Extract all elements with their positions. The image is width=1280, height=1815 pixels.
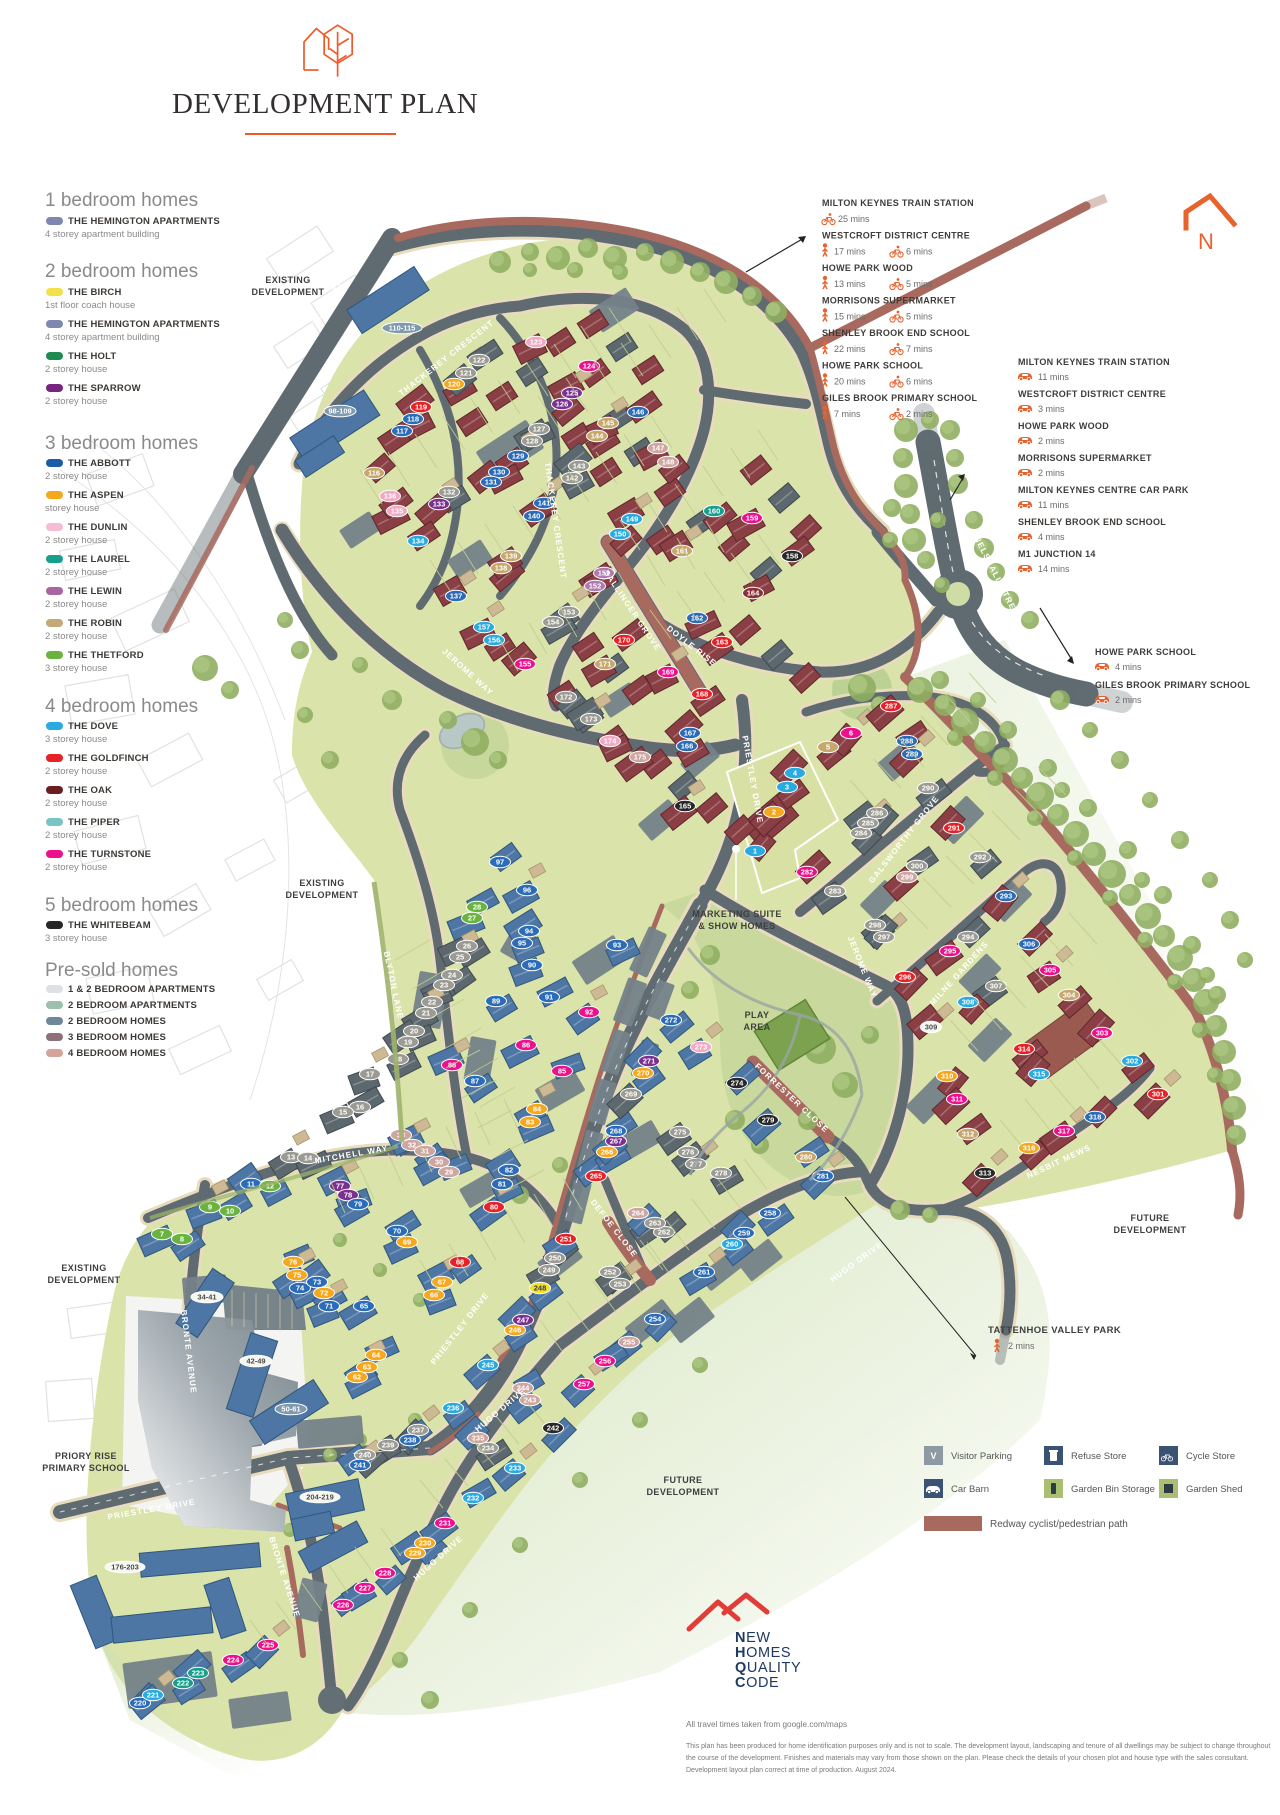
svg-text:76: 76	[289, 1258, 297, 1267]
svg-text:165: 165	[679, 802, 692, 811]
svg-text:133: 133	[433, 500, 446, 509]
svg-text:231: 231	[439, 1519, 452, 1528]
svg-text:2 BEDROOM APARTMENTS: 2 BEDROOM APARTMENTS	[68, 1000, 197, 1011]
svg-text:MILTON KEYNES TRAIN STATION: MILTON KEYNES TRAIN STATION	[822, 198, 974, 208]
svg-text:304: 304	[1063, 991, 1076, 1000]
svg-text:150: 150	[614, 530, 627, 539]
svg-text:175: 175	[634, 753, 647, 762]
svg-text:123: 123	[530, 338, 543, 347]
svg-text:292: 292	[974, 853, 987, 862]
svg-text:242: 242	[547, 1424, 560, 1433]
svg-text:2 mins: 2 mins	[1038, 436, 1065, 446]
svg-text:269: 269	[625, 1090, 638, 1099]
svg-text:136: 136	[384, 492, 397, 501]
svg-text:62: 62	[353, 1373, 361, 1382]
svg-text:143: 143	[573, 462, 586, 471]
svg-text:80: 80	[490, 1203, 498, 1212]
svg-text:313: 313	[979, 1169, 992, 1178]
svg-text:222: 222	[177, 1679, 190, 1688]
svg-text:30: 30	[435, 1158, 443, 1167]
svg-text:157: 157	[478, 623, 491, 632]
svg-text:storey house: storey house	[45, 503, 99, 514]
svg-text:250: 250	[549, 1254, 562, 1263]
svg-text:65: 65	[360, 1302, 368, 1311]
svg-text:176-203: 176-203	[111, 1563, 139, 1572]
svg-text:85: 85	[558, 1067, 566, 1076]
svg-text:2 bedroom homes: 2 bedroom homes	[45, 261, 198, 282]
svg-text:87: 87	[471, 1077, 479, 1086]
svg-text:M1 JUNCTION 14: M1 JUNCTION 14	[1018, 549, 1096, 559]
svg-text:2 BEDROOM HOMES: 2 BEDROOM HOMES	[68, 1016, 166, 1027]
svg-text:289: 289	[906, 750, 919, 759]
svg-text:220: 220	[134, 1699, 147, 1708]
svg-text:16: 16	[356, 1103, 364, 1112]
svg-text:226: 226	[337, 1601, 350, 1610]
svg-text:167: 167	[684, 729, 697, 738]
svg-text:297: 297	[878, 933, 891, 942]
svg-text:EXISTING: EXISTING	[265, 275, 310, 285]
svg-text:DEVELOPMENT PLAN: DEVELOPMENT PLAN	[172, 88, 478, 120]
svg-text:159: 159	[746, 514, 759, 523]
svg-text:3 BEDROOM HOMES: 3 BEDROOM HOMES	[68, 1032, 166, 1043]
svg-text:255: 255	[623, 1338, 636, 1347]
svg-text:120: 120	[448, 380, 461, 389]
svg-text:PLAY: PLAY	[745, 1010, 770, 1020]
svg-text:149: 149	[626, 515, 639, 524]
svg-text:256: 256	[599, 1357, 612, 1366]
svg-text:42-49: 42-49	[246, 1357, 265, 1366]
svg-text:279: 279	[762, 1116, 775, 1125]
svg-text:300: 300	[911, 862, 924, 871]
svg-text:DEVELOPMENT: DEVELOPMENT	[647, 1487, 720, 1497]
svg-text:THE LEWIN: THE LEWIN	[68, 586, 122, 597]
svg-text:168: 168	[696, 690, 709, 699]
svg-text:THE TURNSTONE: THE TURNSTONE	[68, 849, 151, 860]
svg-text:131: 131	[485, 478, 498, 487]
svg-text:147: 147	[652, 444, 665, 453]
svg-text:266: 266	[601, 1148, 614, 1157]
svg-text:263: 263	[649, 1219, 662, 1228]
svg-text:298: 298	[869, 921, 882, 930]
svg-text:8: 8	[180, 1235, 184, 1244]
svg-text:THE WHITEBEAM: THE WHITEBEAM	[68, 920, 151, 931]
svg-text:248: 248	[534, 1284, 547, 1293]
svg-text:172: 172	[560, 693, 573, 702]
svg-text:72: 72	[320, 1289, 328, 1298]
svg-text:92: 92	[585, 1008, 593, 1017]
svg-text:308: 308	[962, 998, 975, 1007]
svg-text:1st floor coach house: 1st floor coach house	[45, 300, 135, 311]
svg-text:3 storey house: 3 storey house	[45, 734, 107, 745]
svg-text:259: 259	[738, 1229, 751, 1238]
svg-text:154: 154	[547, 618, 560, 627]
svg-text:14 mins: 14 mins	[1038, 564, 1070, 574]
svg-text:169: 169	[662, 668, 675, 677]
svg-text:121: 121	[460, 369, 473, 378]
svg-text:318: 318	[1089, 1113, 1102, 1122]
svg-text:284: 284	[855, 829, 868, 838]
svg-text:MORRISONS SUPERMARKET: MORRISONS SUPERMARKET	[1018, 453, 1152, 463]
svg-text:5 mins: 5 mins	[906, 312, 933, 322]
svg-text:299: 299	[901, 873, 914, 882]
svg-text:3 mins: 3 mins	[1038, 404, 1065, 414]
svg-text:83: 83	[526, 1118, 534, 1127]
svg-text:160: 160	[708, 507, 721, 516]
svg-text:EXISTING: EXISTING	[61, 1263, 106, 1273]
svg-text:4 mins: 4 mins	[1115, 662, 1142, 672]
svg-text:25: 25	[456, 953, 464, 962]
svg-text:130: 130	[493, 468, 506, 477]
svg-text:262: 262	[658, 1228, 671, 1237]
svg-text:275: 275	[674, 1128, 687, 1137]
svg-text:128: 128	[526, 437, 539, 446]
svg-text:64: 64	[372, 1351, 381, 1360]
svg-text:317: 317	[1058, 1127, 1071, 1136]
svg-text:2 storey house: 2 storey house	[45, 862, 107, 873]
svg-text:96: 96	[523, 886, 531, 895]
svg-text:241: 241	[354, 1461, 367, 1470]
svg-text:32: 32	[408, 1141, 416, 1150]
svg-text:2 storey house: 2 storey house	[45, 567, 107, 578]
svg-text:This plan has been produced fo: This plan has been produced for home ide…	[686, 1743, 1270, 1750]
svg-text:270: 270	[637, 1069, 650, 1078]
svg-text:272: 272	[665, 1016, 678, 1025]
svg-text:228: 228	[379, 1569, 392, 1578]
svg-text:273: 273	[695, 1043, 708, 1052]
svg-text:67: 67	[438, 1278, 446, 1287]
svg-text:15 mins: 15 mins	[834, 312, 866, 322]
svg-text:Visitor Parking: Visitor Parking	[951, 1451, 1012, 1462]
svg-text:249: 249	[543, 1266, 556, 1275]
svg-text:QUALITY: QUALITY	[735, 1660, 801, 1676]
svg-text:294: 294	[962, 933, 975, 942]
svg-text:29: 29	[445, 1168, 453, 1177]
svg-text:TATTENHOE VALLEY PARK: TATTENHOE VALLEY PARK	[988, 1325, 1121, 1336]
svg-text:2 mins: 2 mins	[1038, 468, 1065, 478]
svg-text:22 mins: 22 mins	[834, 344, 866, 354]
svg-text:Development layout plan correc: Development layout plan correct at time …	[686, 1767, 897, 1774]
svg-text:260: 260	[726, 1240, 739, 1249]
svg-text:N: N	[1198, 229, 1214, 254]
svg-text:316: 316	[1023, 1144, 1036, 1153]
svg-text:98-109: 98-109	[328, 407, 351, 416]
svg-text:Redway cyclist/pedestrian path: Redway cyclist/pedestrian path	[990, 1519, 1128, 1530]
svg-text:7 mins: 7 mins	[834, 409, 861, 419]
svg-text:All travel times taken from go: All travel times taken from google.com/m…	[686, 1720, 847, 1729]
svg-text:110-115: 110-115	[389, 324, 416, 333]
svg-text:81: 81	[498, 1180, 506, 1189]
svg-text:THE ROBIN: THE ROBIN	[68, 618, 122, 629]
svg-text:THE SPARROW: THE SPARROW	[68, 383, 141, 394]
svg-text:276: 276	[682, 1148, 695, 1157]
svg-text:V: V	[930, 1451, 936, 1461]
svg-text:26: 26	[463, 942, 471, 951]
svg-text:227: 227	[359, 1584, 372, 1593]
svg-text:253: 253	[614, 1280, 627, 1289]
svg-text:290: 290	[922, 784, 935, 793]
svg-text:7: 7	[160, 1230, 164, 1239]
svg-text:NEW: NEW	[735, 1630, 771, 1646]
svg-text:63: 63	[363, 1363, 371, 1372]
svg-text:134: 134	[412, 537, 425, 546]
svg-text:166: 166	[681, 742, 694, 751]
svg-text:MILTON KEYNES CENTRE CAR PARK: MILTON KEYNES CENTRE CAR PARK	[1018, 485, 1189, 495]
svg-text:Pre-sold homes: Pre-sold homes	[45, 960, 178, 981]
svg-text:204-219: 204-219	[306, 1493, 334, 1502]
svg-text:309: 309	[925, 1023, 938, 1032]
svg-text:DEVELOPMENT: DEVELOPMENT	[48, 1275, 121, 1285]
svg-text:118: 118	[407, 415, 419, 424]
svg-text:FUTURE: FUTURE	[664, 1475, 703, 1485]
svg-text:251: 251	[560, 1235, 573, 1244]
svg-text:310: 310	[941, 1072, 954, 1081]
svg-text:94: 94	[525, 927, 534, 936]
svg-text:95: 95	[518, 939, 526, 948]
svg-text:138: 138	[495, 564, 508, 573]
svg-text:24: 24	[448, 971, 457, 980]
svg-text:MILTON KEYNES TRAIN STATION: MILTON KEYNES TRAIN STATION	[1018, 357, 1170, 367]
svg-text:278: 278	[715, 1169, 728, 1178]
svg-text:MORRISONS SUPERMARKET: MORRISONS SUPERMARKET	[822, 296, 956, 306]
svg-text:162: 162	[691, 614, 704, 623]
svg-text:17 mins: 17 mins	[834, 247, 866, 257]
svg-text:132: 132	[443, 488, 456, 497]
svg-text:140: 140	[528, 512, 541, 521]
svg-text:11 mins: 11 mins	[1038, 372, 1069, 382]
svg-text:22: 22	[428, 998, 436, 1007]
svg-text:HOWE PARK WOOD: HOWE PARK WOOD	[1018, 421, 1109, 431]
svg-text:5 bedroom homes: 5 bedroom homes	[45, 895, 198, 916]
svg-text:280: 280	[800, 1153, 813, 1162]
svg-text:50-61: 50-61	[281, 1405, 300, 1414]
svg-text:238: 238	[404, 1436, 417, 1445]
svg-text:236: 236	[447, 1404, 460, 1413]
svg-text:28: 28	[473, 903, 481, 912]
svg-text:34-41: 34-41	[197, 1293, 216, 1302]
svg-text:174: 174	[604, 737, 617, 746]
svg-text:152: 152	[589, 582, 602, 591]
svg-text:2 mins: 2 mins	[1008, 1341, 1035, 1351]
svg-text:2 storey house: 2 storey house	[45, 535, 107, 546]
svg-text:2 storey house: 2 storey house	[45, 599, 107, 610]
svg-text:314: 314	[1018, 1045, 1031, 1054]
svg-text:20: 20	[410, 1027, 418, 1036]
svg-text:135: 135	[391, 507, 404, 516]
svg-text:HOMES: HOMES	[735, 1645, 791, 1661]
svg-text:77: 77	[336, 1182, 344, 1191]
svg-text:FUTURE: FUTURE	[1131, 1213, 1170, 1223]
svg-text:5 mins: 5 mins	[906, 279, 933, 289]
svg-text:66: 66	[430, 1291, 438, 1300]
svg-text:90: 90	[528, 961, 536, 970]
svg-text:19: 19	[404, 1038, 412, 1047]
svg-text:312: 312	[962, 1130, 975, 1139]
svg-text:283: 283	[829, 887, 842, 896]
svg-text:142: 142	[566, 474, 579, 483]
svg-text:1 & 2 BEDROOM APARTMENTS: 1 & 2 BEDROOM APARTMENTS	[68, 984, 215, 995]
svg-text:17: 17	[366, 1070, 374, 1079]
svg-text:285: 285	[862, 819, 875, 828]
svg-text:230: 230	[419, 1539, 432, 1548]
svg-text:71: 71	[325, 1302, 333, 1311]
svg-text:1: 1	[753, 847, 757, 856]
svg-text:170: 170	[618, 636, 631, 645]
svg-text:5: 5	[826, 743, 830, 752]
svg-text:146: 146	[632, 408, 645, 417]
svg-text:Car Barn: Car Barn	[951, 1484, 989, 1495]
svg-text:295: 295	[944, 947, 957, 956]
svg-text:126: 126	[556, 400, 569, 409]
svg-text:4 bedroom homes: 4 bedroom homes	[45, 696, 198, 717]
svg-text:20 mins: 20 mins	[834, 377, 866, 387]
svg-text:261: 261	[698, 1268, 711, 1277]
svg-text:6 mins: 6 mins	[906, 247, 933, 257]
svg-text:234: 234	[482, 1444, 495, 1453]
svg-text:MARKETING SUITE: MARKETING SUITE	[692, 909, 782, 919]
svg-text:267: 267	[610, 1137, 623, 1146]
svg-text:84: 84	[533, 1105, 542, 1114]
svg-text:287: 287	[885, 702, 898, 711]
svg-text:Refuse Store: Refuse Store	[1071, 1451, 1126, 1462]
svg-text:6 mins: 6 mins	[906, 377, 933, 387]
svg-text:3 bedroom homes: 3 bedroom homes	[45, 433, 198, 454]
svg-text:127: 127	[533, 425, 546, 434]
svg-text:THE DOVE: THE DOVE	[68, 721, 118, 732]
svg-text:156: 156	[488, 636, 501, 645]
svg-text:117: 117	[396, 427, 408, 436]
svg-text:2 mins: 2 mins	[1115, 695, 1142, 705]
svg-text:14: 14	[304, 1154, 313, 1163]
svg-text:282: 282	[801, 868, 814, 877]
svg-text:2 storey house: 2 storey house	[45, 798, 107, 809]
svg-text:265: 265	[590, 1172, 603, 1181]
svg-text:SHENLEY BROOK END SCHOOL: SHENLEY BROOK END SCHOOL	[1018, 517, 1166, 527]
svg-text:GILES BROOK PRIMARY SCHOOL: GILES BROOK PRIMARY SCHOOL	[822, 393, 978, 403]
svg-text:122: 122	[473, 356, 486, 365]
svg-text:SHENLEY BROOK END SCHOOL: SHENLEY BROOK END SCHOOL	[822, 328, 970, 338]
svg-text:155: 155	[519, 660, 532, 669]
svg-text:THE ABBOTT: THE ABBOTT	[68, 458, 131, 469]
svg-text:& SHOW HOMES: & SHOW HOMES	[698, 921, 775, 931]
svg-text:7 mins: 7 mins	[906, 344, 933, 354]
svg-text:2 storey house: 2 storey house	[45, 471, 107, 482]
svg-text:CODE: CODE	[735, 1675, 779, 1691]
svg-text:THE GOLDFINCH: THE GOLDFINCH	[68, 753, 149, 764]
svg-text:6: 6	[849, 729, 853, 738]
svg-text:2 storey house: 2 storey house	[45, 364, 107, 375]
svg-text:145: 145	[602, 419, 615, 428]
svg-text:11 mins: 11 mins	[1038, 500, 1069, 510]
svg-text:171: 171	[599, 660, 612, 669]
svg-text:1 bedroom homes: 1 bedroom homes	[45, 190, 198, 211]
svg-text:254: 254	[649, 1315, 662, 1324]
svg-text:GILES BROOK PRIMARY SCHOOL: GILES BROOK PRIMARY SCHOOL	[1095, 680, 1251, 690]
svg-text:AREA: AREA	[743, 1022, 770, 1032]
svg-text:305: 305	[1044, 966, 1057, 975]
svg-text:15: 15	[339, 1108, 347, 1117]
svg-text:2 storey house: 2 storey house	[45, 766, 107, 777]
svg-text:75: 75	[293, 1271, 301, 1280]
svg-text:3 storey house: 3 storey house	[45, 663, 107, 674]
svg-text:23: 23	[440, 981, 448, 990]
svg-text:2 storey house: 2 storey house	[45, 396, 107, 407]
svg-text:4 storey apartment building: 4 storey apartment building	[45, 229, 160, 240]
svg-text:144: 144	[591, 432, 604, 441]
svg-text:4 BEDROOM HOMES: 4 BEDROOM HOMES	[68, 1048, 166, 1059]
svg-text:EXISTING: EXISTING	[299, 878, 344, 888]
svg-text:311: 311	[951, 1095, 963, 1104]
svg-text:the course of the development.: the course of the development. Finishes …	[686, 1755, 1249, 1762]
svg-text:271: 271	[643, 1057, 656, 1066]
svg-text:163: 163	[716, 638, 729, 647]
svg-text:3 storey house: 3 storey house	[45, 933, 107, 944]
svg-text:93: 93	[613, 941, 621, 950]
svg-text:2 storey house: 2 storey house	[45, 830, 107, 841]
svg-text:223: 223	[192, 1669, 205, 1678]
svg-text:THE DUNLIN: THE DUNLIN	[68, 522, 128, 533]
svg-text:2 mins: 2 mins	[906, 409, 933, 419]
svg-text:THE PIPER: THE PIPER	[68, 817, 120, 828]
svg-text:137: 137	[450, 592, 463, 601]
svg-text:307: 307	[990, 982, 1003, 991]
svg-text:125: 125	[566, 389, 579, 398]
svg-text:Garden Shed: Garden Shed	[1186, 1484, 1243, 1495]
svg-text:296: 296	[899, 973, 912, 982]
svg-text:124: 124	[583, 362, 596, 371]
svg-text:73: 73	[313, 1278, 321, 1287]
svg-text:PRIMARY SCHOOL: PRIMARY SCHOOL	[42, 1463, 130, 1473]
svg-text:158: 158	[786, 552, 799, 561]
svg-text:239: 239	[382, 1441, 395, 1450]
svg-text:233: 233	[509, 1464, 522, 1473]
svg-text:164: 164	[747, 589, 760, 598]
svg-text:27: 27	[468, 914, 476, 923]
svg-text:HOWE PARK SCHOOL: HOWE PARK SCHOOL	[1095, 647, 1196, 657]
svg-text:288: 288	[901, 737, 914, 746]
svg-text:173: 173	[585, 715, 598, 724]
svg-text:306: 306	[1023, 940, 1036, 949]
svg-text:25 mins: 25 mins	[838, 214, 870, 224]
svg-text:119: 119	[415, 403, 427, 412]
svg-text:THE BIRCH: THE BIRCH	[68, 287, 122, 298]
svg-text:DEVELOPMENT: DEVELOPMENT	[252, 287, 325, 297]
svg-text:221: 221	[147, 1691, 160, 1700]
svg-text:247: 247	[517, 1316, 530, 1325]
svg-text:THE ASPEN: THE ASPEN	[68, 490, 124, 501]
svg-text:74: 74	[296, 1284, 305, 1293]
svg-text:89: 89	[492, 997, 500, 1006]
svg-text:DEVELOPMENT: DEVELOPMENT	[286, 890, 359, 900]
svg-text:79: 79	[354, 1200, 362, 1209]
svg-text:315: 315	[1033, 1070, 1046, 1079]
svg-text:THE HEMINGTON APARTMENTS: THE HEMINGTON APARTMENTS	[68, 319, 220, 330]
svg-text:10: 10	[226, 1207, 234, 1216]
svg-text:229: 229	[409, 1549, 422, 1558]
svg-text:246: 246	[509, 1326, 522, 1335]
svg-text:4 storey apartment building: 4 storey apartment building	[45, 332, 160, 343]
svg-text:THE HOLT: THE HOLT	[68, 351, 116, 362]
svg-text:Garden Bin Storage: Garden Bin Storage	[1071, 1484, 1155, 1495]
svg-text:148: 148	[662, 458, 675, 467]
svg-text:301: 301	[1152, 1090, 1165, 1099]
svg-text:13: 13	[287, 1153, 295, 1162]
svg-text:4 mins: 4 mins	[1038, 532, 1065, 542]
svg-text:2 storey house: 2 storey house	[45, 631, 107, 642]
svg-text:97: 97	[496, 858, 504, 867]
svg-text:116: 116	[368, 469, 380, 478]
svg-text:WESTCROFT DISTRICT CENTRE: WESTCROFT DISTRICT CENTRE	[1018, 389, 1166, 399]
svg-text:264: 264	[632, 1209, 645, 1218]
